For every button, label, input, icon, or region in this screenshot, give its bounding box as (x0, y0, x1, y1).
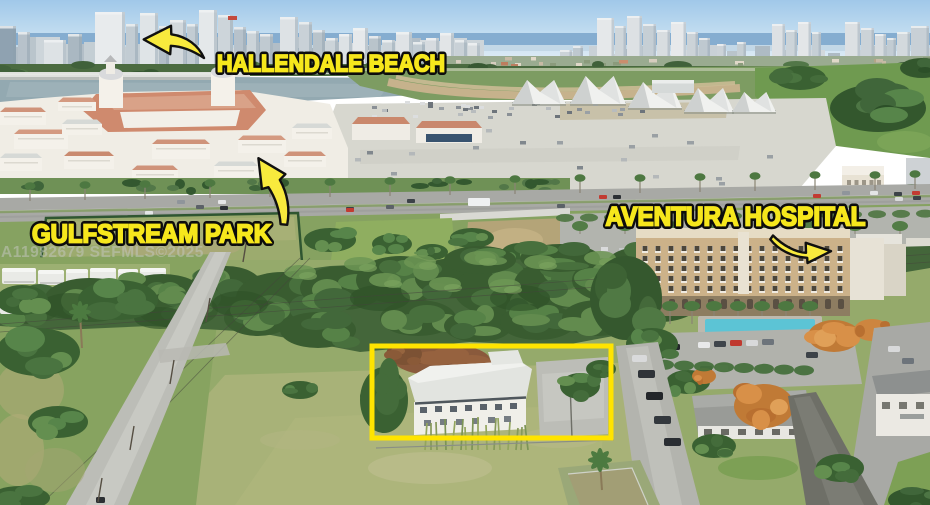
svg-text:GULFSTREAM PARK: GULFSTREAM PARK (32, 221, 272, 249)
svg-text:HALLENDALE BEACH: HALLENDALE BEACH (217, 51, 445, 78)
svg-text:AVENTURA HOSPITAL: AVENTURA HOSPITAL (606, 202, 866, 232)
